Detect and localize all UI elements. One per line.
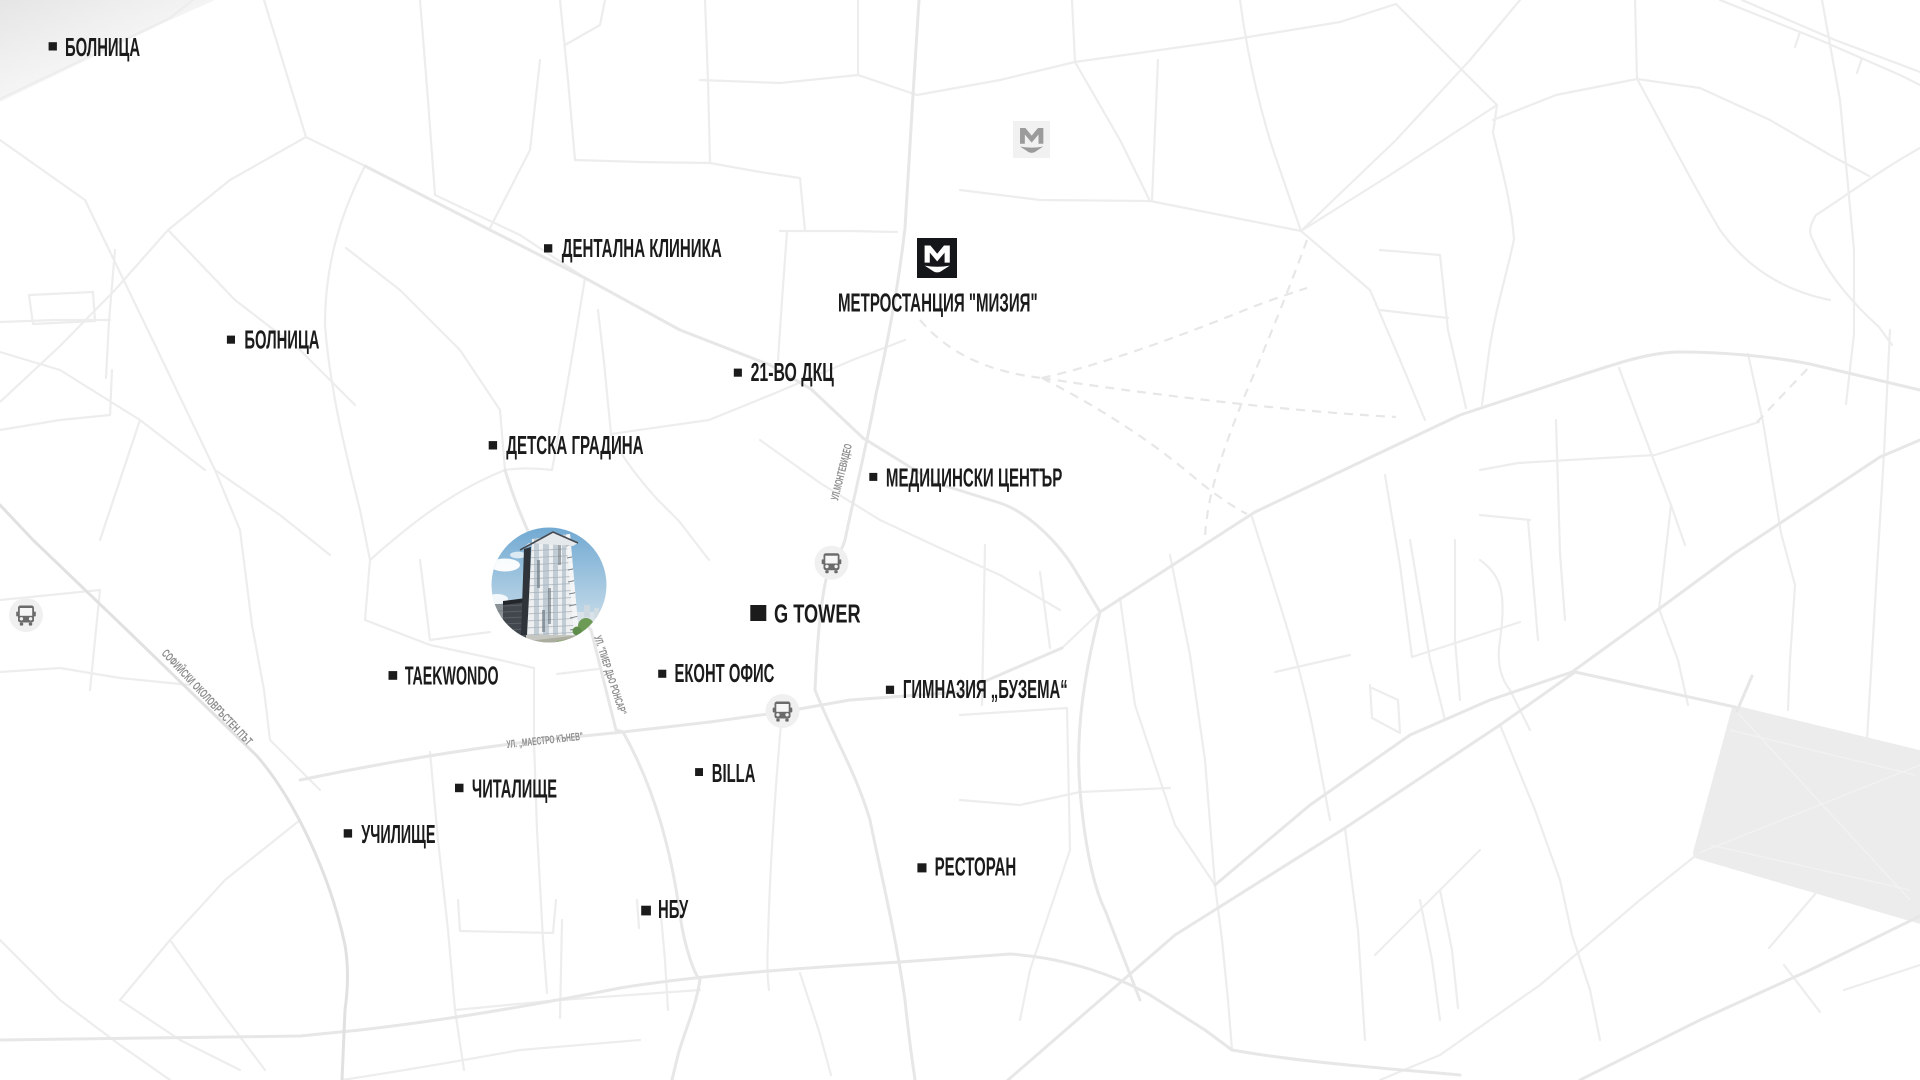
svg-text:БОЛНИЦА: БОЛНИЦА <box>244 326 319 354</box>
svg-text:ДЕТСКА ГРАДИНА: ДЕТСКА ГРАДИНА <box>506 431 643 460</box>
svg-text:G TOWER: G TOWER <box>774 599 861 628</box>
svg-text:НБУ: НБУ <box>658 896 689 924</box>
svg-text:БОЛНИЦА: БОЛНИЦА <box>65 34 140 62</box>
svg-text:ГИМНАЗИЯ „БУЗЕМА“: ГИМНАЗИЯ „БУЗЕМА“ <box>903 676 1068 704</box>
svg-text:ЕКОНТ ОФИС: ЕКОНТ ОФИС <box>675 660 775 688</box>
svg-text:УЧИЛИЩЕ: УЧИЛИЩЕ <box>361 821 435 849</box>
svg-text:МЕТРОСТАНЦИЯ "МИЗИЯ": МЕТРОСТАНЦИЯ "МИЗИЯ" <box>838 288 1038 317</box>
svg-text:ДЕНТАЛНА КЛИНИКА: ДЕНТАЛНА КЛИНИКА <box>562 234 722 263</box>
svg-text:РЕСТОРАН: РЕСТОРАН <box>935 852 1017 881</box>
svg-text:TAEKWONDO: TAEKWONDO <box>405 662 499 691</box>
svg-text:BILLA: BILLA <box>712 760 756 788</box>
svg-text:21-ВО ДКЦ: 21-ВО ДКЦ <box>751 358 834 387</box>
svg-text:ЧИТАЛИЩЕ: ЧИТАЛИЩЕ <box>472 776 557 804</box>
svg-text:МЕДИЦИНСКИ ЦЕНТЪР: МЕДИЦИНСКИ ЦЕНТЪР <box>886 463 1062 492</box>
